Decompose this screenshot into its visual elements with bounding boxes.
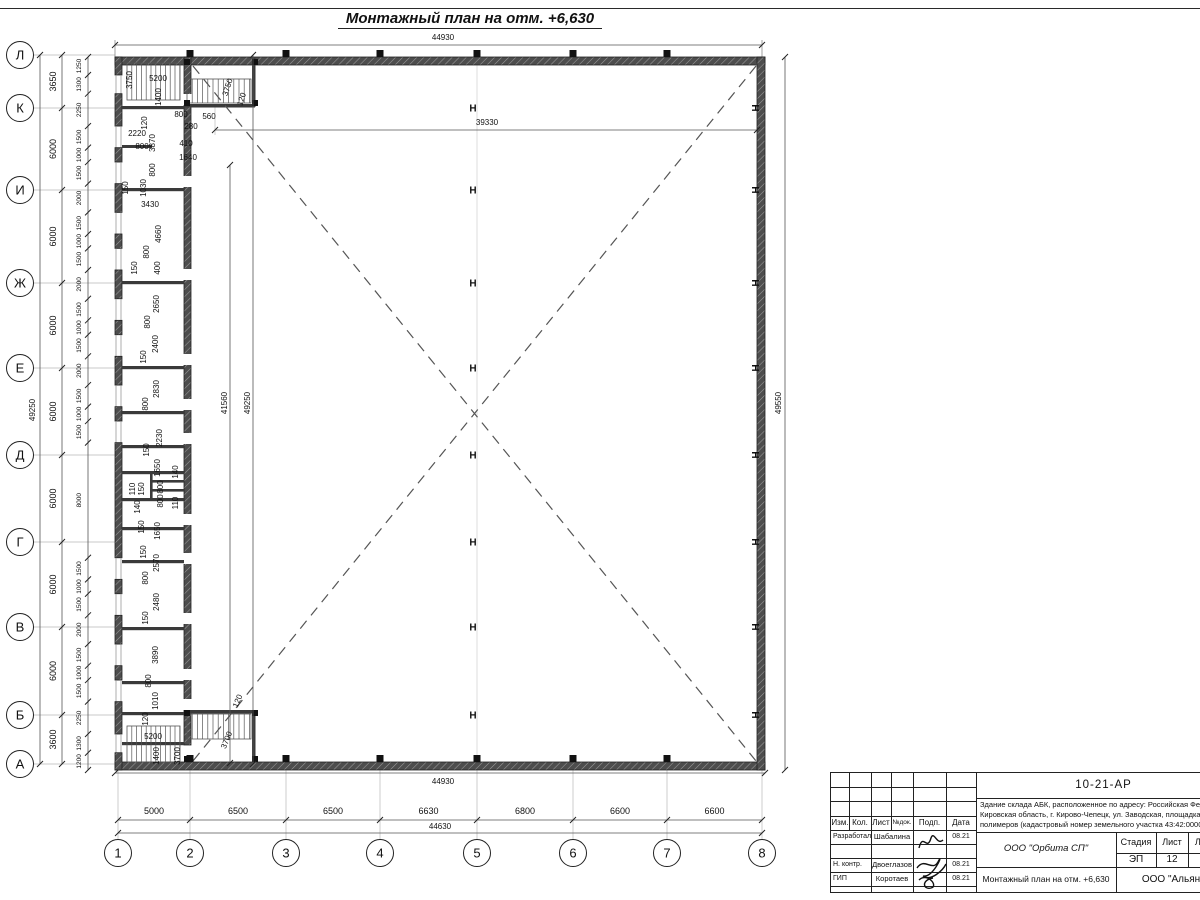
dim-label: 1650	[153, 459, 162, 477]
dim-label: 150	[121, 181, 130, 195]
axis-bubble-label: 5	[473, 846, 480, 861]
fine-dim-label: 2250	[76, 710, 83, 725]
dim-label: 800	[148, 163, 157, 177]
signature-scribbles	[913, 830, 953, 890]
fine-dim-label: 1500	[76, 647, 83, 662]
fine-dim-label: 1300	[76, 77, 83, 92]
fine-dim-label: 2000	[76, 622, 83, 637]
signature-1	[917, 859, 946, 878]
dim-label: 44930	[432, 777, 455, 786]
dim-label: 280	[184, 122, 198, 131]
wall-left-pier	[115, 579, 122, 593]
fine-dim-label: 1000	[76, 406, 83, 421]
dim-label: 1400	[152, 747, 161, 765]
door-opening	[183, 514, 192, 525]
tb-name-0: Шабалина	[871, 830, 913, 844]
fine-dim-label: 1500	[76, 252, 83, 267]
fine-dim-label: 1000	[76, 147, 83, 162]
column-symbol-right: Н	[749, 711, 760, 718]
dim-label: 150	[142, 443, 151, 457]
fine-dim-label: 2000	[76, 363, 83, 378]
wall-bottom	[115, 762, 765, 770]
dim-label: 3890	[151, 646, 160, 664]
axis-dim-label: 6000	[48, 139, 58, 159]
dim-label: 140	[133, 500, 142, 514]
dim-label: 150	[139, 545, 148, 559]
dim-label: 3750	[125, 71, 134, 89]
fine-dim-label: 2000	[76, 190, 83, 205]
column-square	[283, 755, 290, 762]
wall-left-pier	[115, 407, 122, 421]
axis-dim-label: 3600	[48, 729, 58, 749]
door-opening	[183, 433, 192, 444]
dim-label: 150	[139, 350, 148, 364]
axis-bubble-label: В	[16, 620, 25, 635]
axis-bubble-label: А	[16, 757, 25, 772]
dim-label: 3430	[141, 200, 159, 209]
fine-dim-label: 1500	[76, 129, 83, 144]
tb-sheet-value: 12	[1156, 853, 1188, 867]
column-symbol: Н	[469, 711, 476, 722]
dim-label: 110	[171, 496, 180, 509]
fine-dim-label: 1500	[76, 388, 83, 403]
axis-bubble-label: Г	[16, 535, 23, 550]
dim-label: 150	[130, 261, 139, 275]
dim-label: 800	[156, 480, 165, 494]
axis-bubble-label: Е	[16, 361, 25, 376]
dim-label: 1010	[151, 692, 160, 710]
axis-bubble-label: 3	[282, 846, 289, 861]
dim-label: 400	[153, 261, 162, 275]
dim-label: 1650	[153, 522, 162, 540]
column-square	[187, 755, 194, 762]
column-symbol-right: Н	[749, 104, 760, 111]
dim-label: 3700	[219, 730, 234, 750]
dim-label: 2830	[152, 380, 161, 398]
tb-description-line-2: полимеров (кадастровый номер земельного …	[980, 820, 1200, 830]
wall-top	[115, 57, 765, 65]
tb-line	[831, 787, 976, 788]
dim-label: 49250	[243, 391, 252, 414]
column-symbol-right: Н	[749, 538, 760, 545]
partition-wall	[122, 445, 184, 448]
column-square	[377, 755, 384, 762]
fine-dim-label: 1250	[76, 58, 83, 73]
tb-col-ndok: №док.	[891, 816, 913, 830]
dim-label: 1640	[179, 153, 197, 162]
dim-label: 800	[144, 674, 153, 688]
column-symbol-right: Н	[749, 364, 760, 371]
tb-description-line-1: Кировская область, г. Кирово-Чепецк, ул.…	[980, 810, 1200, 820]
dim-label: 49250	[28, 398, 37, 421]
column-square	[570, 755, 577, 762]
dim-label: 560	[202, 112, 216, 121]
column-square	[570, 50, 577, 57]
axis-bubble-label: Л	[16, 48, 25, 63]
column-symbol: Н	[469, 451, 476, 462]
tb-col-data: Дата	[946, 816, 976, 830]
tb-line	[831, 801, 976, 802]
tb-sheets-value: 1	[1188, 853, 1200, 867]
axis-dim-label: 6000	[48, 661, 58, 681]
fine-dim-label: 1000	[76, 579, 83, 594]
wall-left-pier	[115, 234, 122, 248]
column-symbol-right: Н	[749, 186, 760, 193]
fine-dim-label: 1500	[76, 683, 83, 698]
column-symbol-right: Н	[749, 279, 760, 286]
dim-label: 39330	[476, 118, 499, 127]
wall-left-pier	[115, 753, 122, 770]
wall-right	[757, 57, 765, 770]
partition-wall	[122, 188, 184, 191]
floor-plan-canvas: НННННННННННННННН365060006000600060006000…	[0, 0, 1200, 900]
dim-label: 410	[179, 139, 193, 148]
dim-label: 41560	[220, 391, 229, 414]
tb-sheets-label: Листов	[1188, 832, 1200, 853]
tb-subtitle: Монтажный план на отм. +6,630	[976, 867, 1116, 892]
dim-label: 800	[143, 315, 152, 329]
column-symbol-right: Н	[749, 623, 760, 630]
dim-label: 150	[137, 482, 146, 496]
door-opening	[183, 399, 192, 410]
column-square	[377, 50, 384, 57]
column-symbol: Н	[469, 623, 476, 634]
door-opening	[183, 553, 192, 564]
tb-col-podp: Подп.	[913, 816, 946, 830]
axis-bubble-label: 4	[376, 846, 383, 861]
dim-label: 150	[141, 611, 150, 625]
dim-label: 44630	[429, 822, 452, 831]
tb-role-1: Н. контр.	[831, 858, 873, 872]
stair-wall	[252, 710, 256, 762]
dim-label: 5200	[149, 74, 167, 83]
fine-dim-label: 1000	[76, 320, 83, 335]
column-symbol: Н	[469, 104, 476, 115]
fine-dim-label: 1500	[76, 424, 83, 439]
dim-label: 4660	[154, 225, 163, 243]
tb-name-2: Коротаев	[871, 872, 913, 886]
fine-dim-label: 8000	[76, 493, 83, 508]
tb-role-0: Разработал	[831, 830, 873, 844]
dim-label: 1400	[154, 88, 163, 106]
partition-wall	[122, 366, 184, 369]
plan-geometry: НННННННННННННННН365060006000600060006000…	[7, 33, 789, 867]
column-symbol: Н	[469, 186, 476, 197]
dim-label: 2220	[128, 129, 146, 138]
column-square	[664, 755, 671, 762]
dim-label: 800	[156, 494, 165, 508]
fine-dim-label: 1500	[76, 561, 83, 576]
axis-bubble-label: 8	[758, 846, 765, 861]
dim-label: 2480	[152, 593, 161, 611]
axis-dim-label: 6000	[48, 401, 58, 421]
dim-label: 120	[140, 116, 149, 130]
partition-wall	[122, 106, 184, 109]
wall-left-pier	[115, 615, 122, 644]
column-square	[664, 50, 671, 57]
axis-dim-label: 6500	[323, 806, 343, 816]
dim-label: 2230	[155, 429, 164, 447]
dim-label: 140	[171, 465, 180, 479]
fine-dim-label: 2250	[76, 102, 83, 117]
dim-label: 800	[141, 397, 150, 411]
tb-line	[831, 886, 976, 887]
stair-column-square	[184, 100, 190, 106]
wall-left-pier	[115, 57, 122, 75]
door-opening	[183, 699, 192, 710]
signature-2	[919, 878, 934, 889]
stair-column-square	[184, 59, 190, 65]
wall-left-pier	[115, 94, 122, 126]
axis-dim-label: 5000	[144, 806, 164, 816]
dim-label: 120	[231, 693, 245, 709]
stair-wall	[184, 710, 255, 714]
fine-dim-label: 2000	[76, 277, 83, 292]
fine-dim-label: 1500	[76, 338, 83, 353]
tb-col-izm: Изм.	[831, 816, 849, 830]
axis-bubble-label: К	[16, 101, 24, 116]
column-symbol: Н	[469, 538, 476, 549]
axis-dim-label: 6630	[418, 806, 438, 816]
wall-left-pier	[115, 356, 122, 385]
fine-dim-label: 1500	[76, 165, 83, 180]
dim-label: 800	[141, 571, 150, 585]
dim-label: 800	[174, 110, 188, 119]
axis-bubble-label: 7	[663, 846, 670, 861]
dim-label: 120	[141, 712, 150, 726]
tb-stage-label: Стадия	[1116, 832, 1156, 853]
tb-role-2: ГИП	[831, 872, 873, 886]
signature-0	[919, 836, 943, 848]
fine-dim-label: 1200	[76, 754, 83, 769]
door-opening	[183, 354, 192, 365]
tb-line	[831, 844, 976, 845]
axis-dim-label: 6800	[515, 806, 535, 816]
column-square	[283, 50, 290, 57]
dim-label: 2650	[152, 295, 161, 313]
axis-dim-label: 6600	[610, 806, 630, 816]
dim-label: 3750	[221, 77, 235, 97]
drawing-sheet: Монтажный план на отм. +6,630 НННННННННН…	[0, 0, 1200, 900]
fine-dim-label: 1500	[76, 302, 83, 317]
axis-bubble-label: Б	[16, 708, 25, 723]
fine-dim-label: 1500	[76, 216, 83, 231]
door-opening	[183, 669, 192, 680]
column-symbol: Н	[469, 364, 476, 375]
tb-col-kol: Кол.	[849, 816, 871, 830]
axis-bubble-label: 6	[569, 846, 576, 861]
wall-left-pier	[115, 666, 122, 680]
axis-dim-label: 6000	[48, 315, 58, 335]
axis-bubble-label: 2	[186, 846, 193, 861]
column-square	[474, 755, 481, 762]
dim-label: 2570	[152, 554, 161, 572]
column-symbol-right: Н	[749, 451, 760, 458]
fine-dim-label: 1300	[76, 736, 83, 751]
wall-left-pier	[115, 320, 122, 334]
tb-description-line-0: Здание склада АБК, расположенное по адре…	[980, 800, 1200, 810]
partition-wall	[122, 681, 184, 684]
dim-label: 110	[128, 482, 137, 495]
dim-label: 1030	[139, 179, 148, 197]
axis-dim-label: 6000	[48, 488, 58, 508]
door-opening	[183, 269, 192, 280]
axis-dim-label: 6000	[48, 226, 58, 246]
door-opening	[183, 176, 192, 187]
column-square	[187, 50, 194, 57]
column-square	[474, 50, 481, 57]
partition-wall	[122, 712, 184, 715]
axis-dim-label: 6500	[228, 806, 248, 816]
fine-dim-label: 1000	[76, 665, 83, 680]
dim-label: 3700	[173, 747, 182, 765]
axis-dim-label: 3650	[48, 71, 58, 91]
axis-bubble-label: И	[15, 183, 24, 198]
tb-sheet-label: Лист	[1156, 832, 1188, 853]
tb-org2: ООО "Альянс	[1116, 867, 1200, 892]
tb-name-1: Двоеглазов	[871, 858, 913, 872]
stair-column-square	[184, 710, 190, 716]
dim-label: 5200	[144, 732, 162, 741]
wall-left-pier	[115, 270, 122, 299]
axis-bubble-label: Д	[16, 448, 25, 463]
column-symbol: Н	[469, 279, 476, 290]
tb-org: ООО "Орбита СП"	[976, 832, 1116, 867]
tb-stage-value: ЭП	[1116, 853, 1156, 867]
dim-label: 800	[142, 245, 151, 259]
door-opening	[183, 613, 192, 624]
fine-dim-label: 1500	[76, 597, 83, 612]
partition-wall	[122, 281, 184, 284]
fine-dim-label: 1000	[76, 234, 83, 249]
partition-wall	[122, 627, 184, 630]
dim-label: 2400	[151, 335, 160, 353]
wall-left-pier	[115, 148, 122, 162]
dim-label: 3870	[148, 134, 157, 152]
axis-bubble-label: 1	[114, 846, 121, 861]
axis-bubble-label: Ж	[14, 276, 26, 291]
axis-dim-label: 6600	[704, 806, 724, 816]
stair-flight	[187, 714, 251, 739]
dim-label: 44930	[432, 33, 455, 42]
partition-wall	[122, 411, 184, 414]
wall-left-pier	[115, 702, 122, 734]
tb-col-list: Лист	[871, 816, 891, 830]
dim-label: 150	[137, 520, 146, 534]
dim-label: 49550	[774, 391, 783, 414]
axis-dim-label: 6000	[48, 574, 58, 594]
wall-left-pier	[115, 443, 122, 558]
title-block: Изм. Кол. Лист №док. Подп. Дата Разработ…	[830, 772, 1200, 893]
tb-doc-number: 10-21-АР	[976, 773, 1200, 798]
